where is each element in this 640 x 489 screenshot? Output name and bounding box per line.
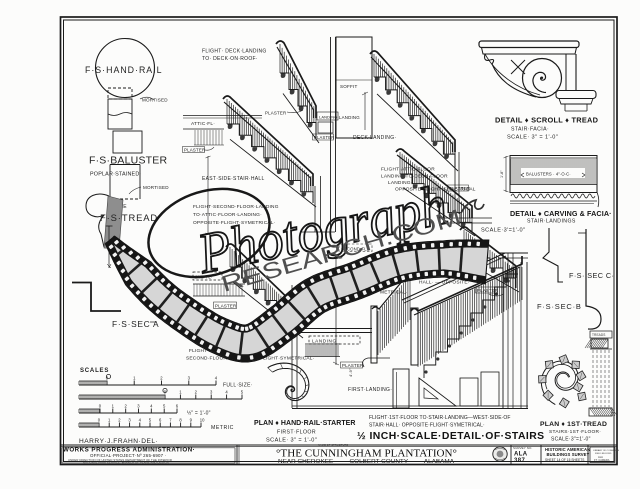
svg-text:PLASTER: PLASTER bbox=[477, 288, 498, 293]
svg-text:LANDING: LANDING bbox=[319, 114, 337, 119]
svg-text:STAIR·HALL· OPPOSITE·FLIGHT·: STAIR·HALL· OPPOSITE·FLIGHT·SYMETRICAL· bbox=[369, 423, 485, 429]
svg-text:F·S·SEC·B: F·S·SEC·B bbox=[537, 302, 582, 311]
svg-text:FULL·SIZE·: FULL·SIZE· bbox=[223, 383, 253, 389]
svg-text:LIBRARY OF CONGRESS: LIBRARY OF CONGRESS bbox=[593, 449, 620, 452]
svg-text:SCALES: SCALES bbox=[80, 368, 109, 374]
svg-text:STAIR·FACIA·: STAIR·FACIA· bbox=[511, 127, 549, 133]
svg-text:FT. CAMERA: FT. CAMERA bbox=[594, 458, 610, 462]
svg-text:°THE CUNNINGHAM PLANTATION°: °THE CUNNINGHAM PLANTATION° bbox=[276, 448, 457, 460]
svg-text:4'-9": 4'-9" bbox=[348, 368, 353, 377]
svg-text:SCALE· 3" = 1'-0": SCALE· 3" = 1'-0" bbox=[266, 438, 317, 444]
svg-text:F·S·BALUSTER: F·S·BALUSTER bbox=[89, 155, 167, 167]
svg-text:SCALE·3"=1'-0": SCALE·3"=1'-0" bbox=[551, 437, 591, 443]
svg-text:EAST·SIDE·STAIR·HALL: EAST·SIDE·STAIR·HALL bbox=[202, 176, 265, 182]
svg-text:POPLAR·STAINED·: POPLAR·STAINED· bbox=[90, 172, 141, 178]
svg-text:PLASTER: PLASTER bbox=[215, 303, 236, 308]
svg-text:1'-8": 1'-8" bbox=[500, 170, 504, 178]
svg-text:NATIONAL PARK SERVICE, BRANCH: NATIONAL PARK SERVICE, BRANCH OF PLANS A… bbox=[83, 461, 169, 465]
svg-text:F·S·SEC A: F·S·SEC A bbox=[112, 319, 159, 329]
svg-text:FLIGHT·1ST·FLOOR TO·STAIR·LAND: FLIGHT·1ST·FLOOR TO·STAIR·LANDING—WEST·S… bbox=[369, 415, 511, 421]
svg-text:SHEET 14 OF 15 SHEETS: SHEET 14 OF 15 SHEETS bbox=[545, 458, 584, 462]
svg-text:BUILDINGS SURVEY: BUILDINGS SURVEY bbox=[547, 452, 590, 457]
svg-text:PLAN ♦ 1ST·TREAD: PLAN ♦ 1ST·TREAD bbox=[540, 421, 607, 428]
svg-text:HARRY·J.FRAHN·DEL·: HARRY·J.FRAHN·DEL· bbox=[79, 438, 158, 445]
svg-text:METRICAL·: METRICAL· bbox=[380, 290, 408, 296]
svg-text:MORTISED: MORTISED bbox=[142, 98, 168, 103]
svg-text:PLASTER: PLASTER bbox=[342, 363, 363, 368]
svg-text:STAIRS·1ST·FLOOR·: STAIRS·1ST·FLOOR· bbox=[549, 429, 601, 435]
svg-text:PLASTER: PLASTER bbox=[184, 148, 205, 153]
svg-text:SCALE·3'=1'-0": SCALE·3'=1'-0" bbox=[481, 228, 525, 234]
svg-text:ATTIC·FL·: ATTIC·FL· bbox=[191, 121, 215, 127]
svg-text:SCALE· 3" = 1'-0": SCALE· 3" = 1'-0" bbox=[507, 135, 558, 141]
svg-text:LANDING: LANDING bbox=[339, 115, 360, 120]
svg-text:PLASTER: PLASTER bbox=[265, 111, 286, 116]
svg-text:F·S·HAND·RAIL: F·S·HAND·RAIL bbox=[85, 65, 163, 75]
svg-text:NEAR CHEROKEE —— COLBERT: NEAR CHEROKEE —— COLBERT COUNTY —— ALABA… bbox=[278, 459, 455, 465]
svg-text:10: 10 bbox=[200, 418, 205, 423]
svg-text:TREADS: TREADS bbox=[592, 333, 606, 337]
svg-text:TO· DECK·ON·ROOF·: TO· DECK·ON·ROOF· bbox=[202, 56, 258, 62]
svg-text:BALUSTERS · 4"·O·C·: BALUSTERS · 4"·O·C· bbox=[526, 172, 571, 177]
svg-text:FIRST·LANDING·: FIRST·LANDING· bbox=[348, 387, 392, 393]
svg-text:STAIR·LANDINGS: STAIR·LANDINGS bbox=[527, 219, 576, 225]
svg-text:PLASTER: PLASTER bbox=[314, 135, 334, 140]
svg-text:DETAIL ♦ SCROLL ♦ TREAD: DETAIL ♦ SCROLL ♦ TREAD bbox=[495, 116, 599, 125]
svg-text:½" = 1'-0": ½" = 1'-0" bbox=[187, 410, 211, 417]
svg-text:PLAN ♦ HAND·RAIL·STARTER: PLAN ♦ HAND·RAIL·STARTER bbox=[254, 420, 355, 427]
svg-text:SOFFIT: SOFFIT bbox=[340, 84, 358, 89]
svg-text:FLIGHT· DECK·LANDING: FLIGHT· DECK·LANDING bbox=[202, 49, 267, 55]
svg-text:LANDING: LANDING bbox=[312, 339, 337, 344]
svg-text:FIELD RECORD: FIELD RECORD bbox=[595, 453, 612, 455]
svg-text:DETAIL ♦ CARVING & FACIA·: DETAIL ♦ CARVING & FACIA· bbox=[510, 209, 612, 218]
svg-text:F·S·TREAD: F·S·TREAD bbox=[100, 212, 158, 223]
svg-text:387: 387 bbox=[514, 458, 525, 464]
svg-text:HALL· — OPPOSITE·: HALL· — OPPOSITE· bbox=[419, 280, 470, 286]
svg-text:DECK·LANDING·: DECK·LANDING· bbox=[353, 135, 396, 141]
svg-text:SURVEY NO.: SURVEY NO. bbox=[513, 446, 532, 450]
svg-text:MORTISED: MORTISED bbox=[143, 185, 169, 190]
svg-text:ALA: ALA bbox=[514, 452, 528, 458]
svg-text:F·S· SEC C·: F·S· SEC C· bbox=[569, 271, 614, 280]
svg-text:FIRST·FLOOR: FIRST·FLOOR bbox=[277, 430, 316, 436]
svg-text:METRIC: METRIC bbox=[211, 425, 234, 431]
svg-text:½ INCH·SCALE·DETAIL·OF·STAIRS: ½ INCH·SCALE·DETAIL·OF·STAIRS bbox=[357, 431, 545, 442]
